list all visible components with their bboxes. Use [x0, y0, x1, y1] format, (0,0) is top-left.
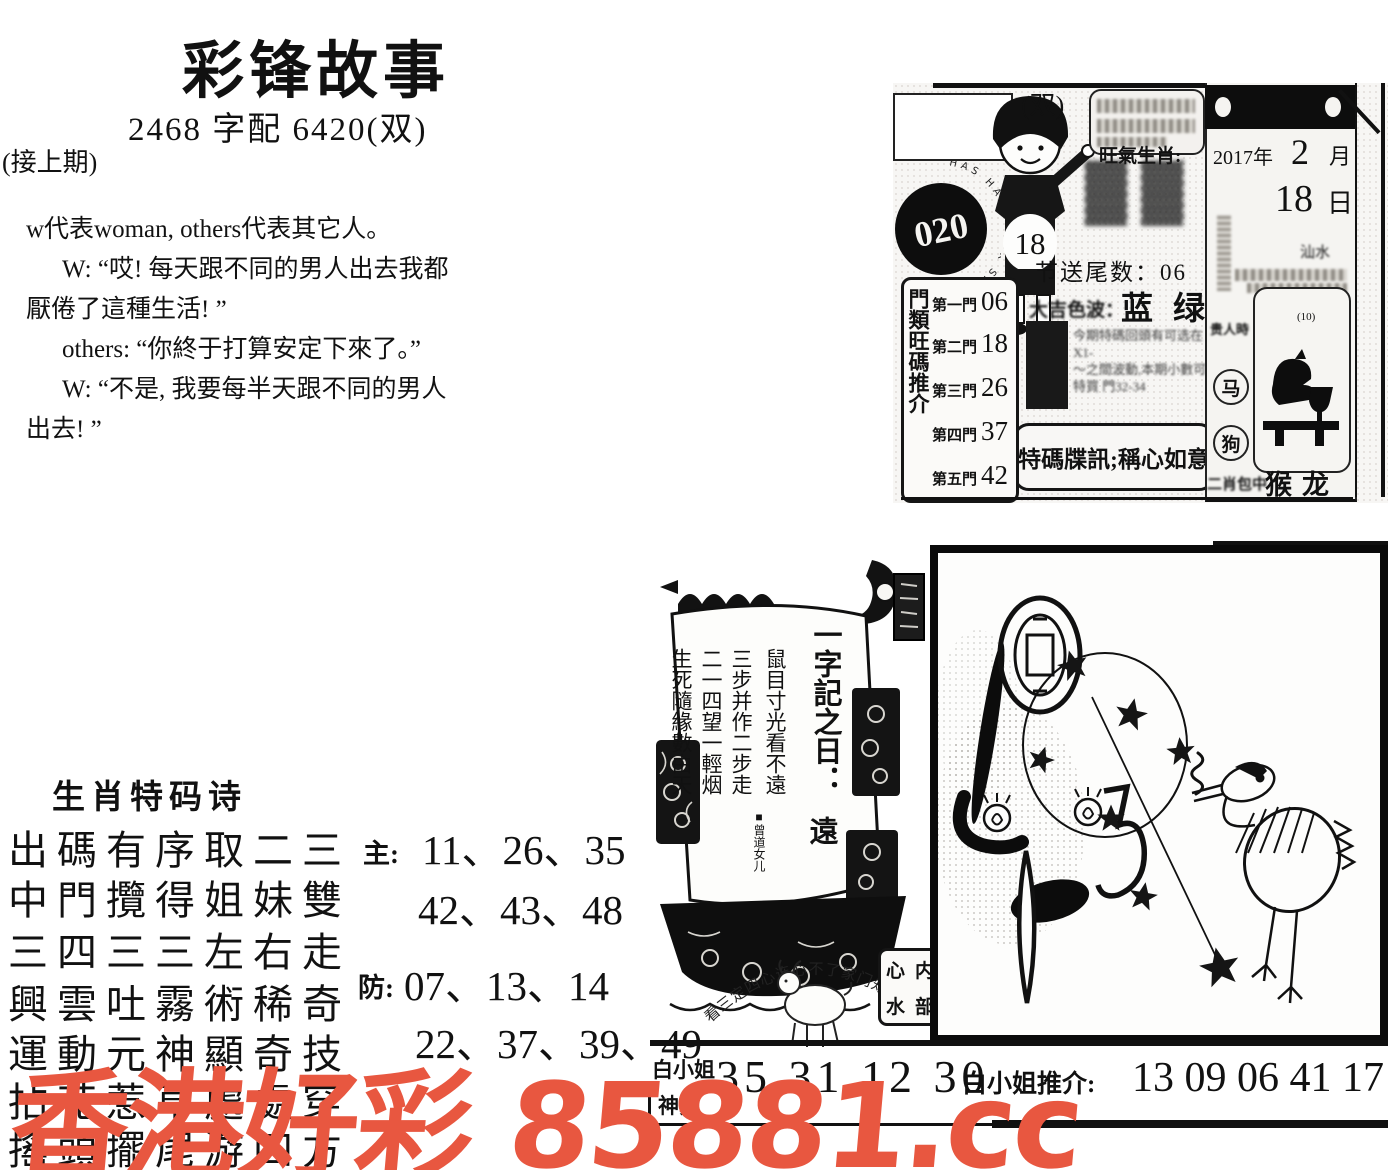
special-message-box: 特碼牒訊;稱心如意	[1013, 423, 1215, 491]
poem-title: 生肖特码诗	[52, 770, 247, 818]
gate-num: 42	[981, 460, 1008, 490]
gate-name: 第五門	[932, 472, 977, 488]
poem-line: 三四三三左右走	[8, 920, 351, 978]
calendar-month-unit: 月	[1329, 139, 1351, 171]
color-wave-label: 大吉色波：	[1029, 295, 1124, 322]
bird-head	[1295, 349, 1306, 359]
gate-row: 第五門42	[932, 460, 1008, 491]
calendar-day: 18	[1275, 177, 1313, 221]
zodiac-char: 马	[1221, 374, 1240, 401]
calendar-panel: 2017年 2 月 18 日 汕水 贵人時 (10)	[1205, 83, 1357, 502]
gate-name: 第四門	[932, 428, 977, 444]
zodiac-circle-horse: 马	[1213, 369, 1249, 405]
calendar-year: 2017年	[1213, 141, 1273, 170]
story-line: 出去! ”	[26, 410, 586, 450]
special-message: 特碼牒訊;稱心如意	[1018, 440, 1210, 474]
story-line: 厭倦了這種生活! ”	[26, 290, 586, 330]
continued-note: (接上期)	[2, 142, 97, 179]
ship-seal-box	[894, 574, 924, 640]
card-bottom-border	[901, 497, 1353, 500]
poem-line: 中門攬得姐妹雙	[8, 868, 351, 926]
calendar-hole	[1325, 97, 1341, 117]
crane-body	[1231, 796, 1353, 924]
fine-print-line: ～之間波動,本期小數可	[1073, 361, 1211, 378]
calendar-smudge	[1217, 215, 1231, 291]
gate-vertical-label: 門類旺碼推介	[907, 288, 929, 492]
calendar-day-unit: 日	[1327, 183, 1353, 220]
gate-num: 37	[981, 416, 1008, 446]
sail-text: 一字記之日： 遠 鼠目寸光看不遠 三步并作二步走 二一四望一輕烟 生死隨緣數由天…	[668, 614, 888, 914]
zodiac-char: 狗	[1221, 430, 1240, 457]
gate-num: 18	[981, 328, 1008, 358]
card-top-border	[933, 83, 1209, 88]
tail-number-line: 节送尾数：06	[1035, 253, 1187, 287]
fine-print: 今期特碼回頭有可选在X1- ～之間波動,本期小數可 特買 門32-34	[1073, 327, 1211, 395]
sail-line: 生死隨緣數由天	[666, 648, 696, 795]
riddle-art	[938, 553, 1380, 1035]
gate-name: 第一門	[932, 298, 977, 314]
noble-label: 贵人時	[1210, 319, 1249, 338]
fine-print-line: 今期特碼回頭有可选在X1-	[1073, 327, 1211, 361]
sail-line: 三步并作二步走	[726, 648, 756, 795]
sail-line: 鼠目寸光看不遠	[760, 648, 790, 795]
perch-leg	[1315, 430, 1324, 446]
noble-box-art	[1255, 289, 1349, 471]
zodiac-ornate-glyphs: ▓▓	[1085, 155, 1198, 222]
gate-row: 第四門37	[932, 416, 1008, 447]
sail-line: 二一四望一輕烟	[696, 648, 726, 795]
sail-key-word: 遠	[800, 816, 842, 845]
lottery-info-card: 020 HAS HALLMARK SIX 18 (双)	[893, 83, 1388, 503]
gate-num: 26	[981, 372, 1008, 402]
noble-box: (10)	[1253, 287, 1351, 473]
white-petal	[1019, 851, 1034, 1003]
number-five-shape	[1098, 787, 1144, 896]
main-numbers-1: 11、26、35	[422, 816, 625, 876]
gate-row: 第三門26	[932, 372, 1008, 403]
guard-label: 防:	[358, 966, 394, 1005]
crane-eye	[1256, 774, 1265, 783]
color-wave-value: 蓝 绿	[1121, 283, 1211, 329]
story-line: W: “不是, 我要每半天跟不同的男人	[26, 370, 586, 410]
calendar-top-bar	[1205, 85, 1355, 129]
gate-box: 門類旺碼推介 第一門06 第二門18 第三門26 第四門37 第五門42	[901, 277, 1019, 503]
boy-arm	[1053, 153, 1087, 183]
star-icon	[1196, 943, 1243, 988]
star-icon	[1165, 736, 1196, 766]
seal-char: 水	[881, 987, 910, 1023]
story-line: W: “哎! 每天跟不同的男人出去我都	[26, 250, 586, 290]
story-line: others: “你終于打算安定下來了。”	[26, 330, 586, 370]
guard-numbers-1: 07、13、14	[404, 952, 609, 1012]
crane-feet	[1252, 965, 1302, 1003]
coin	[1000, 598, 1080, 712]
crane-beak	[1192, 785, 1223, 801]
kite-string	[1092, 697, 1218, 961]
dark-bird-shape	[1272, 359, 1315, 405]
gate-row: 第一門06	[932, 286, 1008, 317]
page-title: 彩锋故事	[182, 20, 450, 110]
perch-leg	[1275, 430, 1284, 446]
calendar-smudge	[1235, 269, 1347, 281]
bubble-scribble	[1097, 99, 1195, 113]
zodiac-circle-dog: 狗	[1213, 425, 1249, 461]
main-numbers-2: 42、43、48	[418, 876, 623, 936]
calendar-month: 2	[1291, 131, 1309, 173]
tip-numbers: 13 09 06 41 17	[1132, 1054, 1384, 1102]
two-zodiac-label: 二肖包中	[1207, 473, 1267, 494]
gate-row: 第二門18	[932, 328, 1008, 359]
prow-eye	[876, 583, 894, 601]
black-block	[1026, 321, 1068, 409]
story-block: w代表woman, others代表其它人。 W: “哎! 每天跟不同的男人出去…	[26, 210, 586, 450]
gate-name: 第三門	[932, 384, 977, 400]
riddle-picture	[930, 545, 1388, 1043]
calendar-hole	[1215, 97, 1231, 117]
subtitle: 2468 字配 6420(双)	[128, 102, 427, 150]
right-strip	[1355, 83, 1385, 497]
mast-flag	[660, 580, 678, 594]
story-intro: w代表woman, others代表其它人。	[26, 210, 586, 250]
sail-signature: ■曾道女儿	[751, 810, 768, 872]
star-icon	[1112, 695, 1150, 732]
boy-eye	[1038, 145, 1043, 150]
gate-name: 第二門	[932, 340, 977, 356]
main-label: 主:	[363, 832, 399, 871]
crane-legs	[1266, 907, 1297, 987]
scanned-lottery-sheet: 彩锋故事 2468 字配 6420(双) (接上期) w代表woman, oth…	[0, 0, 1388, 1170]
site-watermark: 香港好彩 85881.cc	[5, 1030, 1089, 1170]
calendar-side-note: 汕水	[1300, 241, 1330, 262]
sail-title: 一字記之日：	[804, 620, 846, 794]
gate-num: 06	[981, 286, 1008, 316]
perch-bar	[1263, 421, 1339, 430]
boy-eye	[1017, 145, 1022, 150]
seal-char: 心	[881, 951, 910, 987]
worm	[1192, 753, 1203, 794]
fine-print-line: 特買 門32-34	[1073, 378, 1211, 395]
bubble-scribble	[1097, 119, 1195, 133]
double-tag: (双)	[1021, 85, 1064, 122]
